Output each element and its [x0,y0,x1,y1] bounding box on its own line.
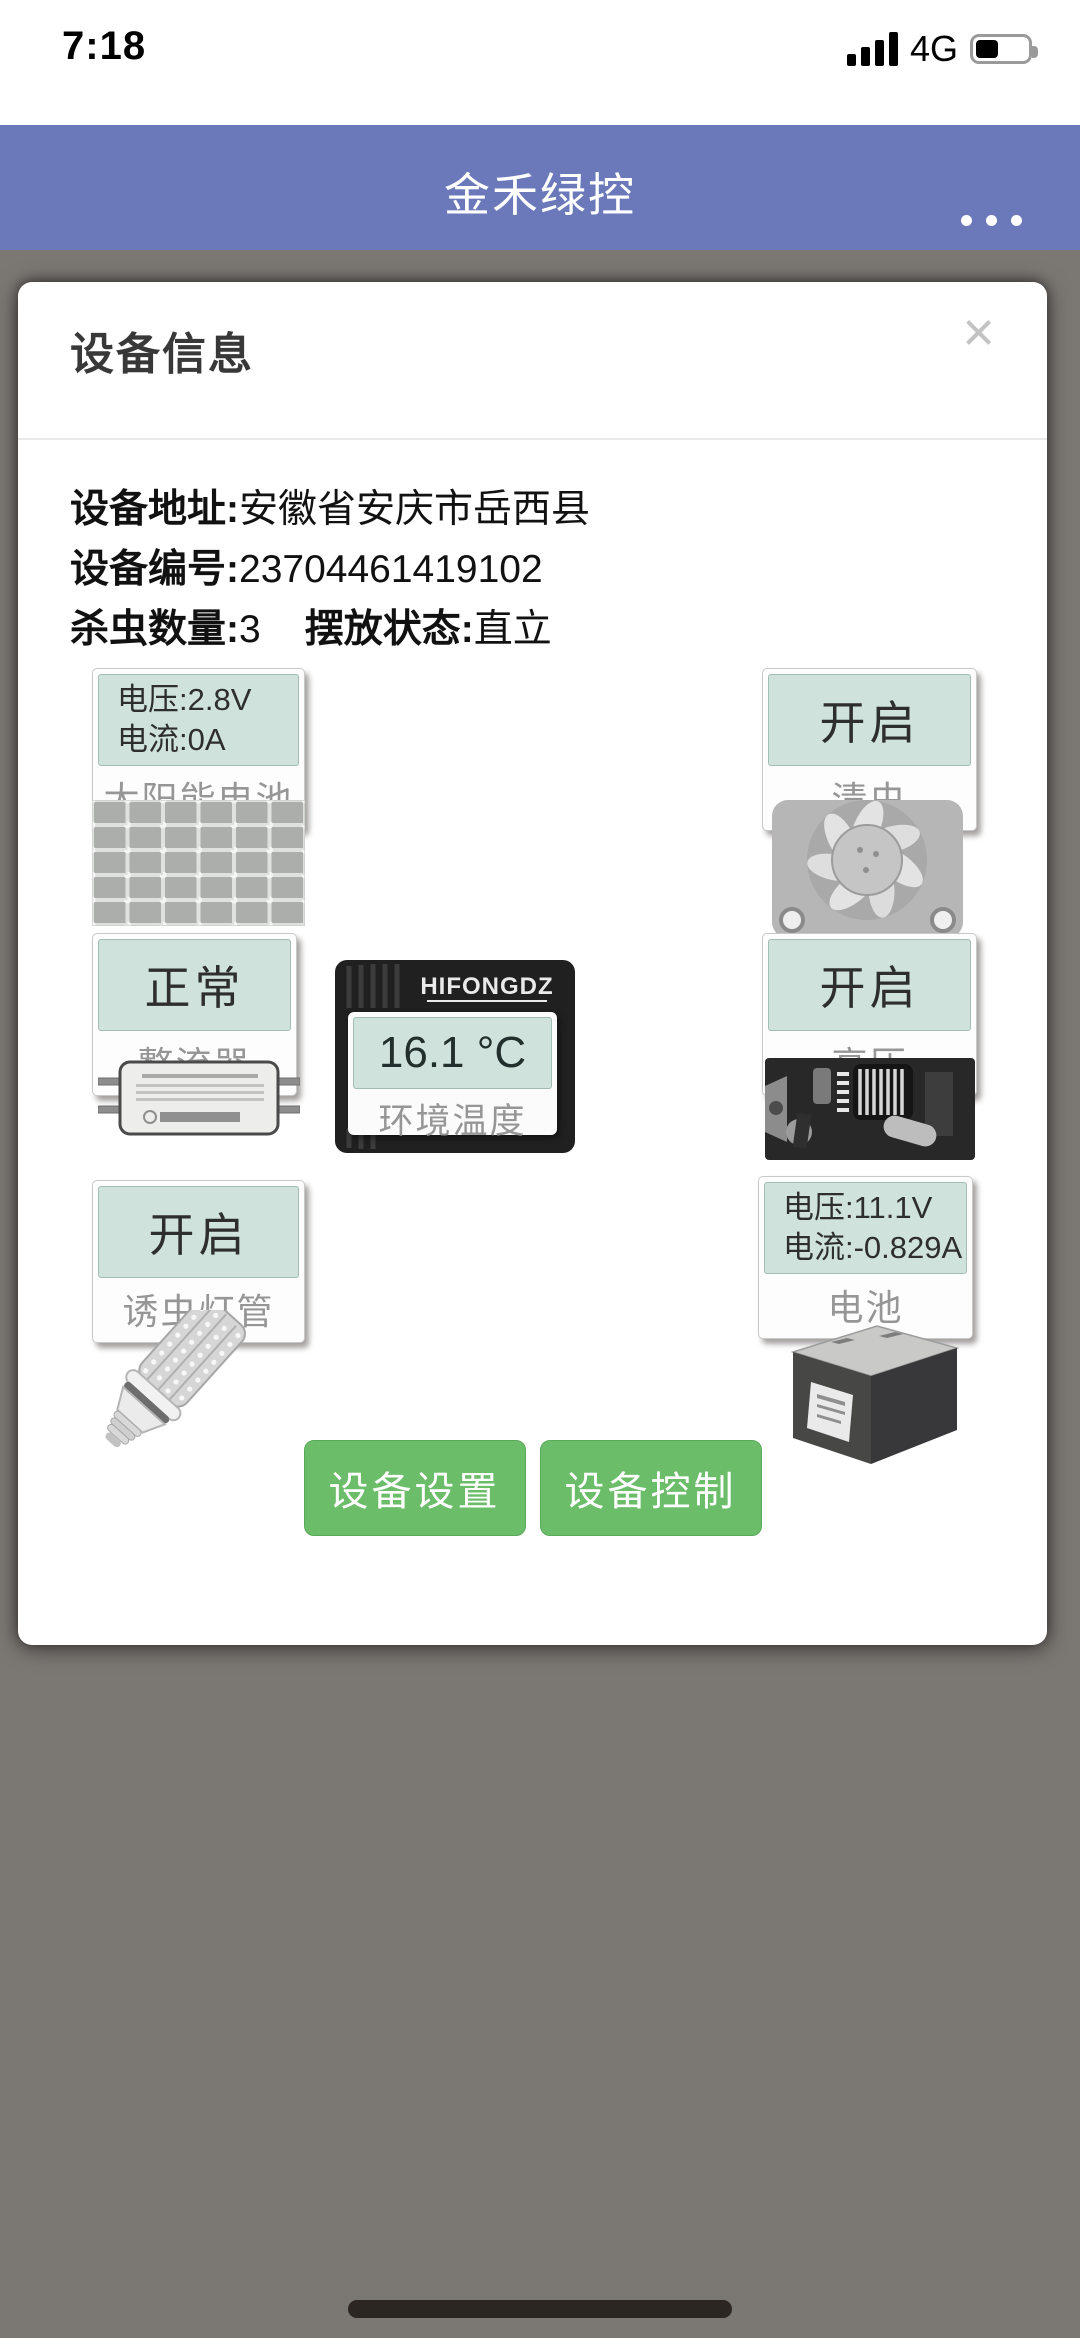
rectifier-image [98,1060,300,1136]
temperature-value: 16.1 °C [353,1017,552,1089]
temperature-card: 16.1 °C 环境温度 [348,1012,557,1135]
info-line-stats: 杀虫数量:3摆放状态:直立 [70,600,590,660]
modal-title: 设备信息 [70,318,254,382]
device-info-modal: 设备信息 × 设备地址:安徽省安庆市岳西县 设备编号:2370446141910… [18,282,1047,1645]
device-settings-button[interactable]: 设备设置 [304,1440,526,1536]
modal-header: 设备信息 × [18,282,1047,440]
high-voltage-image [765,1058,975,1160]
info-line-serial: 设备编号:23704461419102 [70,540,590,600]
network-label: 4G [910,28,958,70]
home-indicator[interactable] [348,2300,732,2318]
high-voltage-status: 开启 [768,939,971,1031]
battery-icon [970,34,1032,64]
status-bar: 7:18 4G [0,0,1080,125]
rectifier-status: 正常 [98,939,291,1031]
close-icon[interactable]: × [962,304,995,360]
fan-image [770,800,965,940]
page-title: 金禾绿控 [0,159,1080,225]
modal-actions: 设备设置 设备控制 [18,1440,1047,1536]
solar-panel-image [92,800,305,926]
status-icons: 4G [847,28,1032,70]
info-line-address: 设备地址:安徽省安庆市岳西县 [70,480,590,540]
more-menu-icon[interactable] [961,215,1022,226]
svg-text:HIFONGDZ: HIFONGDZ [420,973,553,1000]
device-control-button[interactable]: 设备控制 [540,1440,762,1536]
fan-status: 开启 [768,674,971,766]
app-header: 金禾绿控 [0,125,1080,250]
lamp-status: 开启 [98,1186,299,1278]
temperature-module: HIFONGDZ Programmable 16.1 °C 环境温度 [335,960,575,1153]
device-info-text: 设备地址:安徽省安庆市岳西县 设备编号:23704461419102 杀虫数量:… [70,480,590,660]
solar-readings: 电压:2.8V 电流:0A [98,674,299,766]
screen: 7:18 4G 金禾绿控 设备信息 × 设备地址:安徽省安庆市岳西县 设备编号:… [0,0,1080,2338]
clock: 7:18 [62,24,146,69]
signal-icon [847,32,898,66]
temperature-label: 环境温度 [353,1089,552,1144]
battery-readings: 电压:11.1V 电流:-0.829A [764,1182,967,1274]
